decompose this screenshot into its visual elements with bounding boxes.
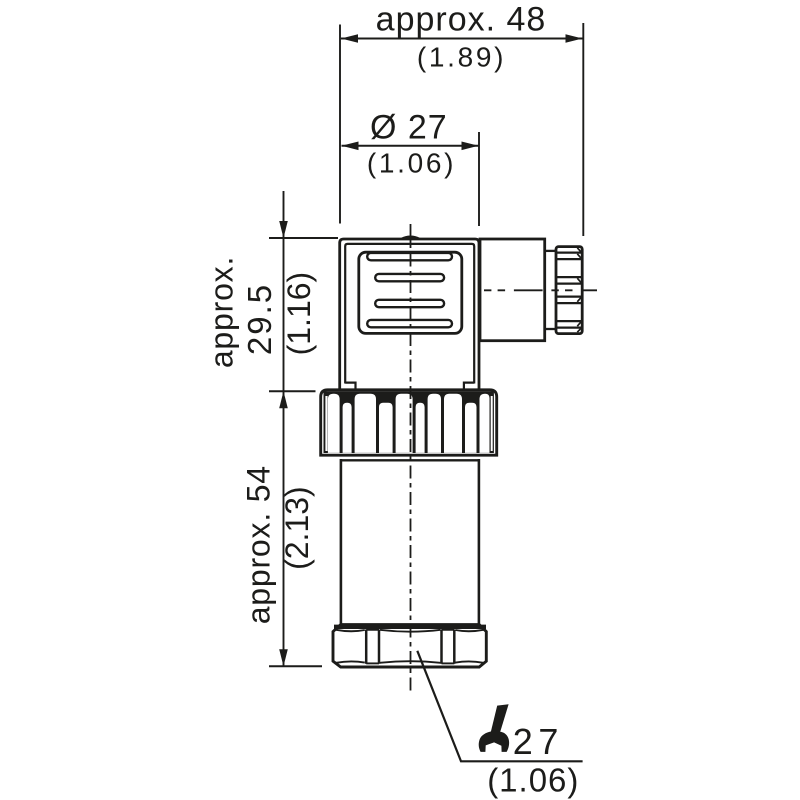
svg-text:(2.13): (2.13) bbox=[279, 486, 315, 570]
svg-text:27: 27 bbox=[513, 721, 564, 762]
svg-text:approx. 54: approx. 54 bbox=[241, 465, 277, 624]
svg-text:29.5: 29.5 bbox=[241, 283, 278, 355]
svg-text:(1.89): (1.89) bbox=[417, 41, 506, 72]
svg-text:approx. 48: approx. 48 bbox=[376, 1, 547, 39]
svg-text:(1.16): (1.16) bbox=[281, 272, 317, 356]
svg-text:(1.06): (1.06) bbox=[487, 761, 579, 798]
svg-text:(1.06): (1.06) bbox=[367, 147, 456, 178]
svg-text:approx.: approx. bbox=[204, 256, 240, 368]
svg-text:Ø 27: Ø 27 bbox=[370, 109, 448, 147]
